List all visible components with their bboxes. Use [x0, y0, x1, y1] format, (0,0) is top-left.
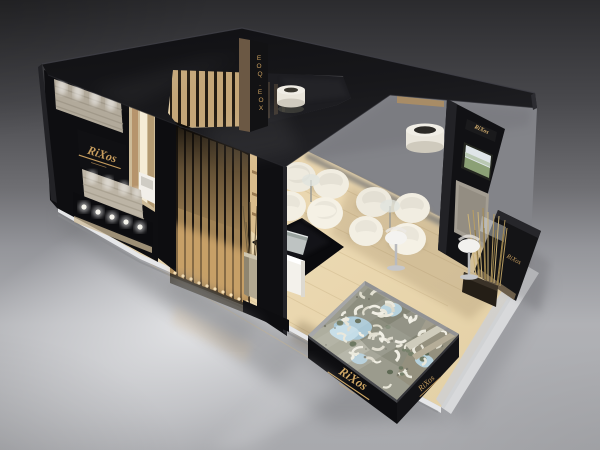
- svg-text:E: E: [258, 89, 263, 96]
- svg-text:O: O: [258, 97, 263, 104]
- svg-text:O: O: [256, 63, 261, 70]
- svg-text:.: .: [259, 81, 261, 88]
- svg-text:E: E: [257, 55, 262, 62]
- svg-text:Q: Q: [257, 71, 262, 78]
- svg-text:X: X: [259, 105, 264, 112]
